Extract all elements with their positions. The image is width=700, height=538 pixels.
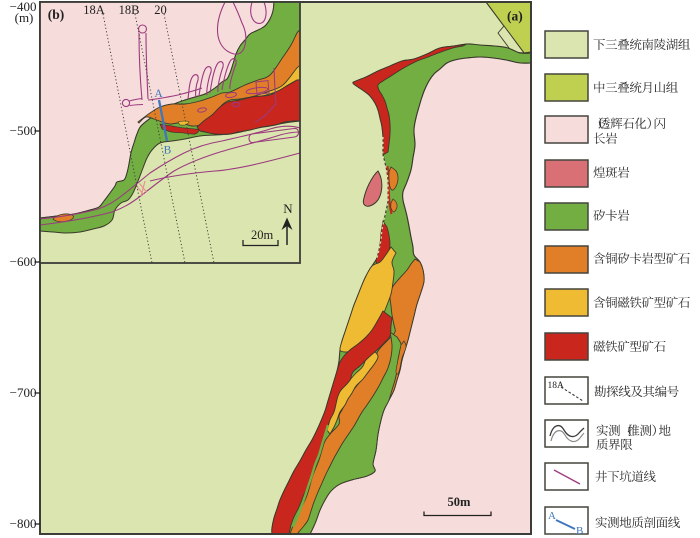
svg-text:−500: −500 — [10, 123, 37, 138]
svg-text:−800: −800 — [10, 516, 37, 531]
svg-text:A: A — [154, 88, 163, 100]
svg-text:20m: 20m — [251, 228, 274, 242]
svg-text:A: A — [548, 510, 556, 522]
svg-text:18B: 18B — [119, 3, 140, 17]
svg-text:20: 20 — [154, 3, 167, 17]
svg-text:B: B — [576, 525, 583, 537]
svg-text:18A: 18A — [548, 381, 565, 391]
svg-text:−700: −700 — [10, 385, 37, 400]
svg-text:(b): (b) — [48, 7, 65, 22]
svg-text:N: N — [283, 201, 293, 216]
svg-text:50m: 50m — [448, 495, 472, 509]
svg-text:−600: −600 — [10, 254, 37, 269]
svg-text:(m): (m) — [15, 10, 34, 25]
svg-text:B: B — [164, 145, 172, 157]
svg-text:18A: 18A — [83, 3, 105, 17]
svg-text:(a): (a) — [507, 9, 523, 24]
